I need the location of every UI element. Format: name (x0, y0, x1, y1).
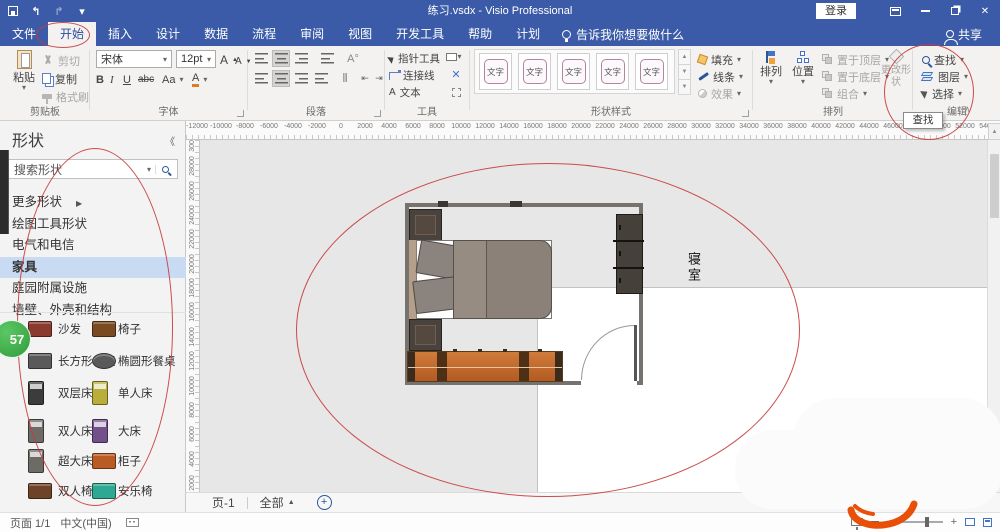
wall-opening-mark (438, 201, 448, 207)
arrange-group: 排列▾ 位置▾ 置于顶层▾ 置于底层▾ 组合▾ 更改形状 排列 (754, 46, 912, 120)
tab-9[interactable]: 帮助 (456, 22, 504, 46)
clipboard-group: 粘贴 ▾ 剪切 复制 格式刷 剪贴板 (2, 46, 88, 120)
bring-to-front-button[interactable]: 置于顶层▾ (822, 51, 889, 68)
underline-button[interactable]: U (123, 71, 131, 88)
editing-group: 查找▾ 图层▾ 选择▾ 编辑 (914, 46, 1000, 120)
orange-swoosh-logo (845, 498, 925, 532)
position-icon (797, 51, 809, 63)
tell-me-box[interactable]: 告诉我你想要做什么 (552, 22, 694, 46)
stencil-label: 大床 (118, 425, 141, 439)
gallery-more-icon: ▼ (678, 79, 691, 95)
align-top-icon[interactable] (252, 50, 270, 67)
group-icon (822, 88, 833, 99)
table-oval-stencil-icon (92, 353, 116, 369)
cabinet-stencil-icon (92, 453, 116, 469)
tab-7[interactable]: 视图 (336, 22, 384, 46)
position-button[interactable]: 位置▾ (788, 51, 818, 85)
bed-blanket[interactable] (453, 240, 552, 319)
stencil-label: 柜子 (118, 455, 141, 469)
align-button[interactable]: 排列▾ (756, 51, 786, 85)
align-center-icon[interactable] (272, 70, 290, 87)
fullscreen-icon[interactable] (983, 518, 992, 527)
pointer-tool-button[interactable]: 指针工具 (389, 50, 440, 67)
font-dialog-launcher-icon[interactable] (237, 110, 244, 117)
tools-group: 指针工具 连接线 A 文本 ▾ ✕ 工具 (385, 46, 469, 120)
stencil-label: 椭圆形餐桌 (118, 355, 176, 369)
paste-icon (17, 50, 32, 69)
text-a-icon: A (389, 87, 396, 98)
line-pen-icon (698, 72, 708, 80)
strikethrough-button[interactable]: abc (138, 71, 154, 88)
connector-tool-button[interactable]: 连接线 (389, 67, 435, 84)
shapes-category-4[interactable]: 庭园附属设施 (0, 278, 186, 299)
connector-icon (389, 72, 399, 80)
scroll-down-icon: ▼ (678, 64, 691, 80)
group-button[interactable]: 组合▾ (822, 85, 867, 102)
shapes-panel: 形状 《 搜索形状 ▾ 更多形状▶绘图工具形状电气和电信家具庭园附属设施墙壁、外… (0, 121, 186, 512)
shape-styles-group: 文字文字文字文字文字 ▲ ▼ ▼ 填充▾ 线条▾ 效果▾ 形状样式 (470, 46, 752, 120)
scissors-icon (42, 55, 54, 67)
bring-front-icon (822, 54, 833, 65)
sofa-stencil-icon (28, 483, 52, 499)
paragraph-dialog-launcher-icon[interactable] (374, 110, 381, 117)
visio-window: ↰ ↱ ▾ 练习.vsdx - Visio Professional 登录 ✕ … (0, 0, 1000, 532)
ribbon-tab-row: 文件开始插入设计数据流程审阅视图开发工具帮助计划 告诉我你想要做什么 (0, 22, 1000, 46)
send-to-back-button[interactable]: 置于底层▾ (822, 68, 889, 85)
shapes-panel-title: 形状 (12, 127, 44, 151)
screen-edge-strip (0, 150, 9, 234)
door-opening (581, 379, 637, 388)
send-back-icon (822, 71, 833, 82)
minimize-button[interactable] (910, 0, 940, 22)
copy-button[interactable]: 复制 (42, 70, 77, 87)
text-direction-icon[interactable]: ⫼ (336, 70, 354, 87)
font-name-select[interactable]: 宋体▾ (96, 50, 172, 68)
bed-stencil-icon (28, 449, 44, 473)
rotate-text-icon[interactable]: A° (344, 50, 362, 67)
shapes-category-5[interactable]: 墙壁、外壳和结构 (0, 300, 186, 321)
effects-icon (698, 89, 707, 98)
caret-up-icon: ▲ (288, 499, 295, 506)
category-label: 电气和电信 (12, 238, 75, 252)
zoom-in-icon[interactable]: + (951, 517, 957, 527)
font-size-select[interactable]: 12pt▾ (176, 50, 216, 68)
group-label: 排列 (754, 103, 912, 118)
style-sample: 文字 (601, 59, 625, 84)
keyboard-icon (126, 518, 139, 527)
chair-stencil-icon (92, 483, 116, 499)
tab-0[interactable]: 文件 (0, 22, 48, 46)
sofa-stencil-icon (28, 321, 52, 337)
pointer-icon (387, 54, 396, 63)
category-label: 墙壁、外壳和结构 (12, 303, 112, 317)
horizontal-ruler: -12000-10000-8000-6000-4000-200002000400… (186, 121, 1000, 140)
scrollbar-up-icon[interactable]: ▲ (988, 123, 1000, 140)
tab-8[interactable]: 开发工具 (384, 22, 456, 46)
delete-tool-icon[interactable]: ✕ (447, 66, 465, 83)
shapes-category-1[interactable]: 绘图工具形状 (0, 214, 186, 235)
share-button[interactable]: 共享 (946, 22, 982, 46)
style-thumbnail[interactable]: 文字 (635, 53, 668, 90)
change-case-button[interactable]: Aa▾ (162, 71, 183, 88)
bullets-icon[interactable] (318, 50, 336, 67)
tab-5[interactable]: 流程 (240, 22, 288, 46)
stencil-label: 双人床 (58, 425, 93, 439)
tab-2[interactable]: 插入 (96, 22, 144, 46)
bed-stencil-icon (92, 419, 108, 443)
bed-stencil-icon (28, 419, 44, 443)
justify-icon[interactable] (312, 70, 330, 87)
tab-1[interactable]: 开始 (48, 22, 96, 46)
tab-3[interactable]: 设计 (144, 22, 192, 46)
change-shape-icon (888, 49, 904, 65)
bed-stencil-icon (28, 381, 44, 405)
tab-6[interactable]: 审阅 (288, 22, 336, 46)
group-label: 工具 (385, 103, 469, 118)
style-gallery-scroll[interactable]: ▲ ▼ ▼ (678, 49, 691, 94)
tab-4[interactable]: 数据 (192, 22, 240, 46)
stencil-label: 双人椅 (58, 485, 93, 499)
stencil-label: 双层床 (58, 387, 93, 401)
category-label: 绘图工具形状 (12, 217, 87, 231)
style-sample: 文字 (523, 59, 547, 84)
ribbon-options-icon[interactable] (880, 0, 910, 22)
restore-button[interactable] (940, 0, 970, 22)
category-label: 更多形状 (12, 195, 62, 209)
title-bar: ↰ ↱ ▾ 练习.vsdx - Visio Professional 登录 ✕ (0, 0, 1000, 22)
style-thumbnail[interactable]: 文字 (557, 53, 590, 90)
effects-button[interactable]: 效果▾ (698, 85, 741, 102)
cut-button[interactable]: 剪切 (42, 52, 80, 69)
text-tool-button[interactable]: A 文本 (389, 84, 421, 101)
style-thumbnail[interactable]: 文字 (596, 53, 629, 90)
nightstand-shape[interactable] (409, 209, 442, 241)
wardrobe-shape[interactable] (616, 214, 643, 294)
align-bottom-icon[interactable] (292, 50, 310, 67)
door-shape[interactable] (634, 325, 637, 381)
layers-button[interactable]: 图层▾ (922, 68, 968, 85)
fit-page-icon[interactable] (965, 518, 975, 526)
all-pages-button[interactable]: 全部 ▲ (248, 494, 307, 511)
shape-styles-dialog-launcher-icon[interactable] (742, 110, 749, 117)
room-label[interactable]: 寝室 (684, 252, 703, 284)
vertical-ruler: 3000028000260002400022000200001800016000… (186, 140, 200, 492)
category-label: 家具 (12, 260, 37, 274)
select-cursor-icon (920, 88, 930, 99)
shapes-category-0[interactable]: 更多形状▶ (0, 192, 186, 213)
group-label: 剪贴板 (2, 103, 88, 118)
select-button[interactable]: 选择▾ (922, 85, 962, 102)
bed-stencil-icon (92, 381, 108, 405)
stencil-label: 超大床 (58, 455, 93, 469)
login-button[interactable]: 登录 (816, 3, 856, 19)
stencil-label: 沙发 (58, 323, 81, 337)
change-shape-button[interactable]: 更改形状 (880, 51, 912, 89)
scroll-up-icon: ▲ (678, 49, 691, 65)
bold-button[interactable]: B (96, 71, 104, 88)
nightstand-shape[interactable] (409, 319, 442, 351)
style-thumbnail[interactable]: 文字 (518, 53, 551, 90)
category-label: 庭园附属设施 (12, 281, 87, 295)
font-group: 宋体▾ 12pt▾ A▲ A▼ B I U abc Aa▾ A ▾ 字体 (90, 46, 247, 120)
group-label: 段落 (248, 103, 384, 118)
close-button[interactable]: ✕ (970, 0, 1000, 22)
fill-button[interactable]: 填充▾ (698, 51, 741, 68)
line-button[interactable]: 线条▾ (698, 68, 743, 85)
fill-bucket-icon (697, 54, 709, 66)
zoom-slider-thumb[interactable] (925, 517, 929, 527)
layers-icon (922, 72, 934, 82)
collapse-panel-icon[interactable]: 《 (165, 133, 175, 148)
scrollbar-thumb[interactable] (990, 154, 999, 218)
find-magnifier-icon (922, 56, 930, 64)
person-icon (946, 30, 954, 38)
stencil-label: 椅子 (118, 323, 141, 337)
shapes-category-3[interactable]: 家具 (0, 257, 186, 278)
dresser-shape[interactable] (407, 351, 563, 382)
shapes-category-2[interactable]: 电气和电信 (0, 235, 186, 256)
search-input[interactable]: 搜索形状 (7, 161, 143, 178)
find-tooltip: 查找 (903, 112, 943, 129)
align-middle-icon[interactable] (272, 50, 290, 67)
font-color-button[interactable]: A ▾ (192, 71, 207, 88)
italic-button[interactable]: I (110, 71, 114, 88)
align-right-icon[interactable] (292, 70, 310, 87)
search-icon[interactable] (162, 166, 169, 173)
paragraph-group: A° ⫼ ⇤ ⇥ 段落 (248, 46, 384, 120)
chair-stencil-icon (92, 321, 116, 337)
style-sample: 文字 (484, 59, 508, 84)
search-dropdown-icon[interactable]: ▾ (143, 165, 156, 174)
lightbulb-icon (562, 30, 571, 39)
table-rect-stencil-icon (28, 353, 52, 369)
connection-point-icon[interactable] (447, 84, 465, 101)
paste-button[interactable]: 粘贴 ▾ (8, 50, 40, 91)
style-gallery: 文字文字文字文字文字 (474, 49, 675, 94)
find-button[interactable]: 查找▾ (922, 51, 964, 68)
collapse-ribbon-icon[interactable]: ∧ (964, 104, 971, 115)
add-page-button[interactable]: + (317, 495, 332, 510)
language-status[interactable]: 中文(中国) (60, 515, 111, 531)
search-shapes-box[interactable]: 搜索形状 ▾ (6, 159, 178, 179)
wall-opening-mark (510, 201, 522, 207)
align-icon (766, 51, 776, 63)
stencil-label: 安乐椅 (118, 485, 153, 499)
expand-arrow-icon: ▶ (76, 199, 82, 208)
copy-icon (42, 73, 51, 84)
style-thumbnail[interactable]: 文字 (479, 53, 512, 90)
ruler-label: 2000 (186, 463, 200, 492)
tab-10[interactable]: 计划 (504, 22, 552, 46)
page-tab[interactable]: 页-1 (200, 493, 247, 513)
style-sample: 文字 (562, 59, 586, 84)
ribbon: 粘贴 ▾ 剪切 复制 格式刷 剪贴板 宋体▾ 12pt▾ (0, 46, 1000, 121)
stencil-label: 单人床 (118, 387, 153, 401)
align-left-icon[interactable] (252, 70, 270, 87)
brush-icon (42, 94, 52, 99)
rectangle-tool-icon[interactable]: ▾ (445, 48, 463, 65)
group-label: 字体 (90, 103, 247, 118)
style-sample: 文字 (640, 59, 664, 84)
page-indicator: 页面 1/1 (10, 515, 50, 531)
group-label: 形状样式 (470, 103, 752, 118)
